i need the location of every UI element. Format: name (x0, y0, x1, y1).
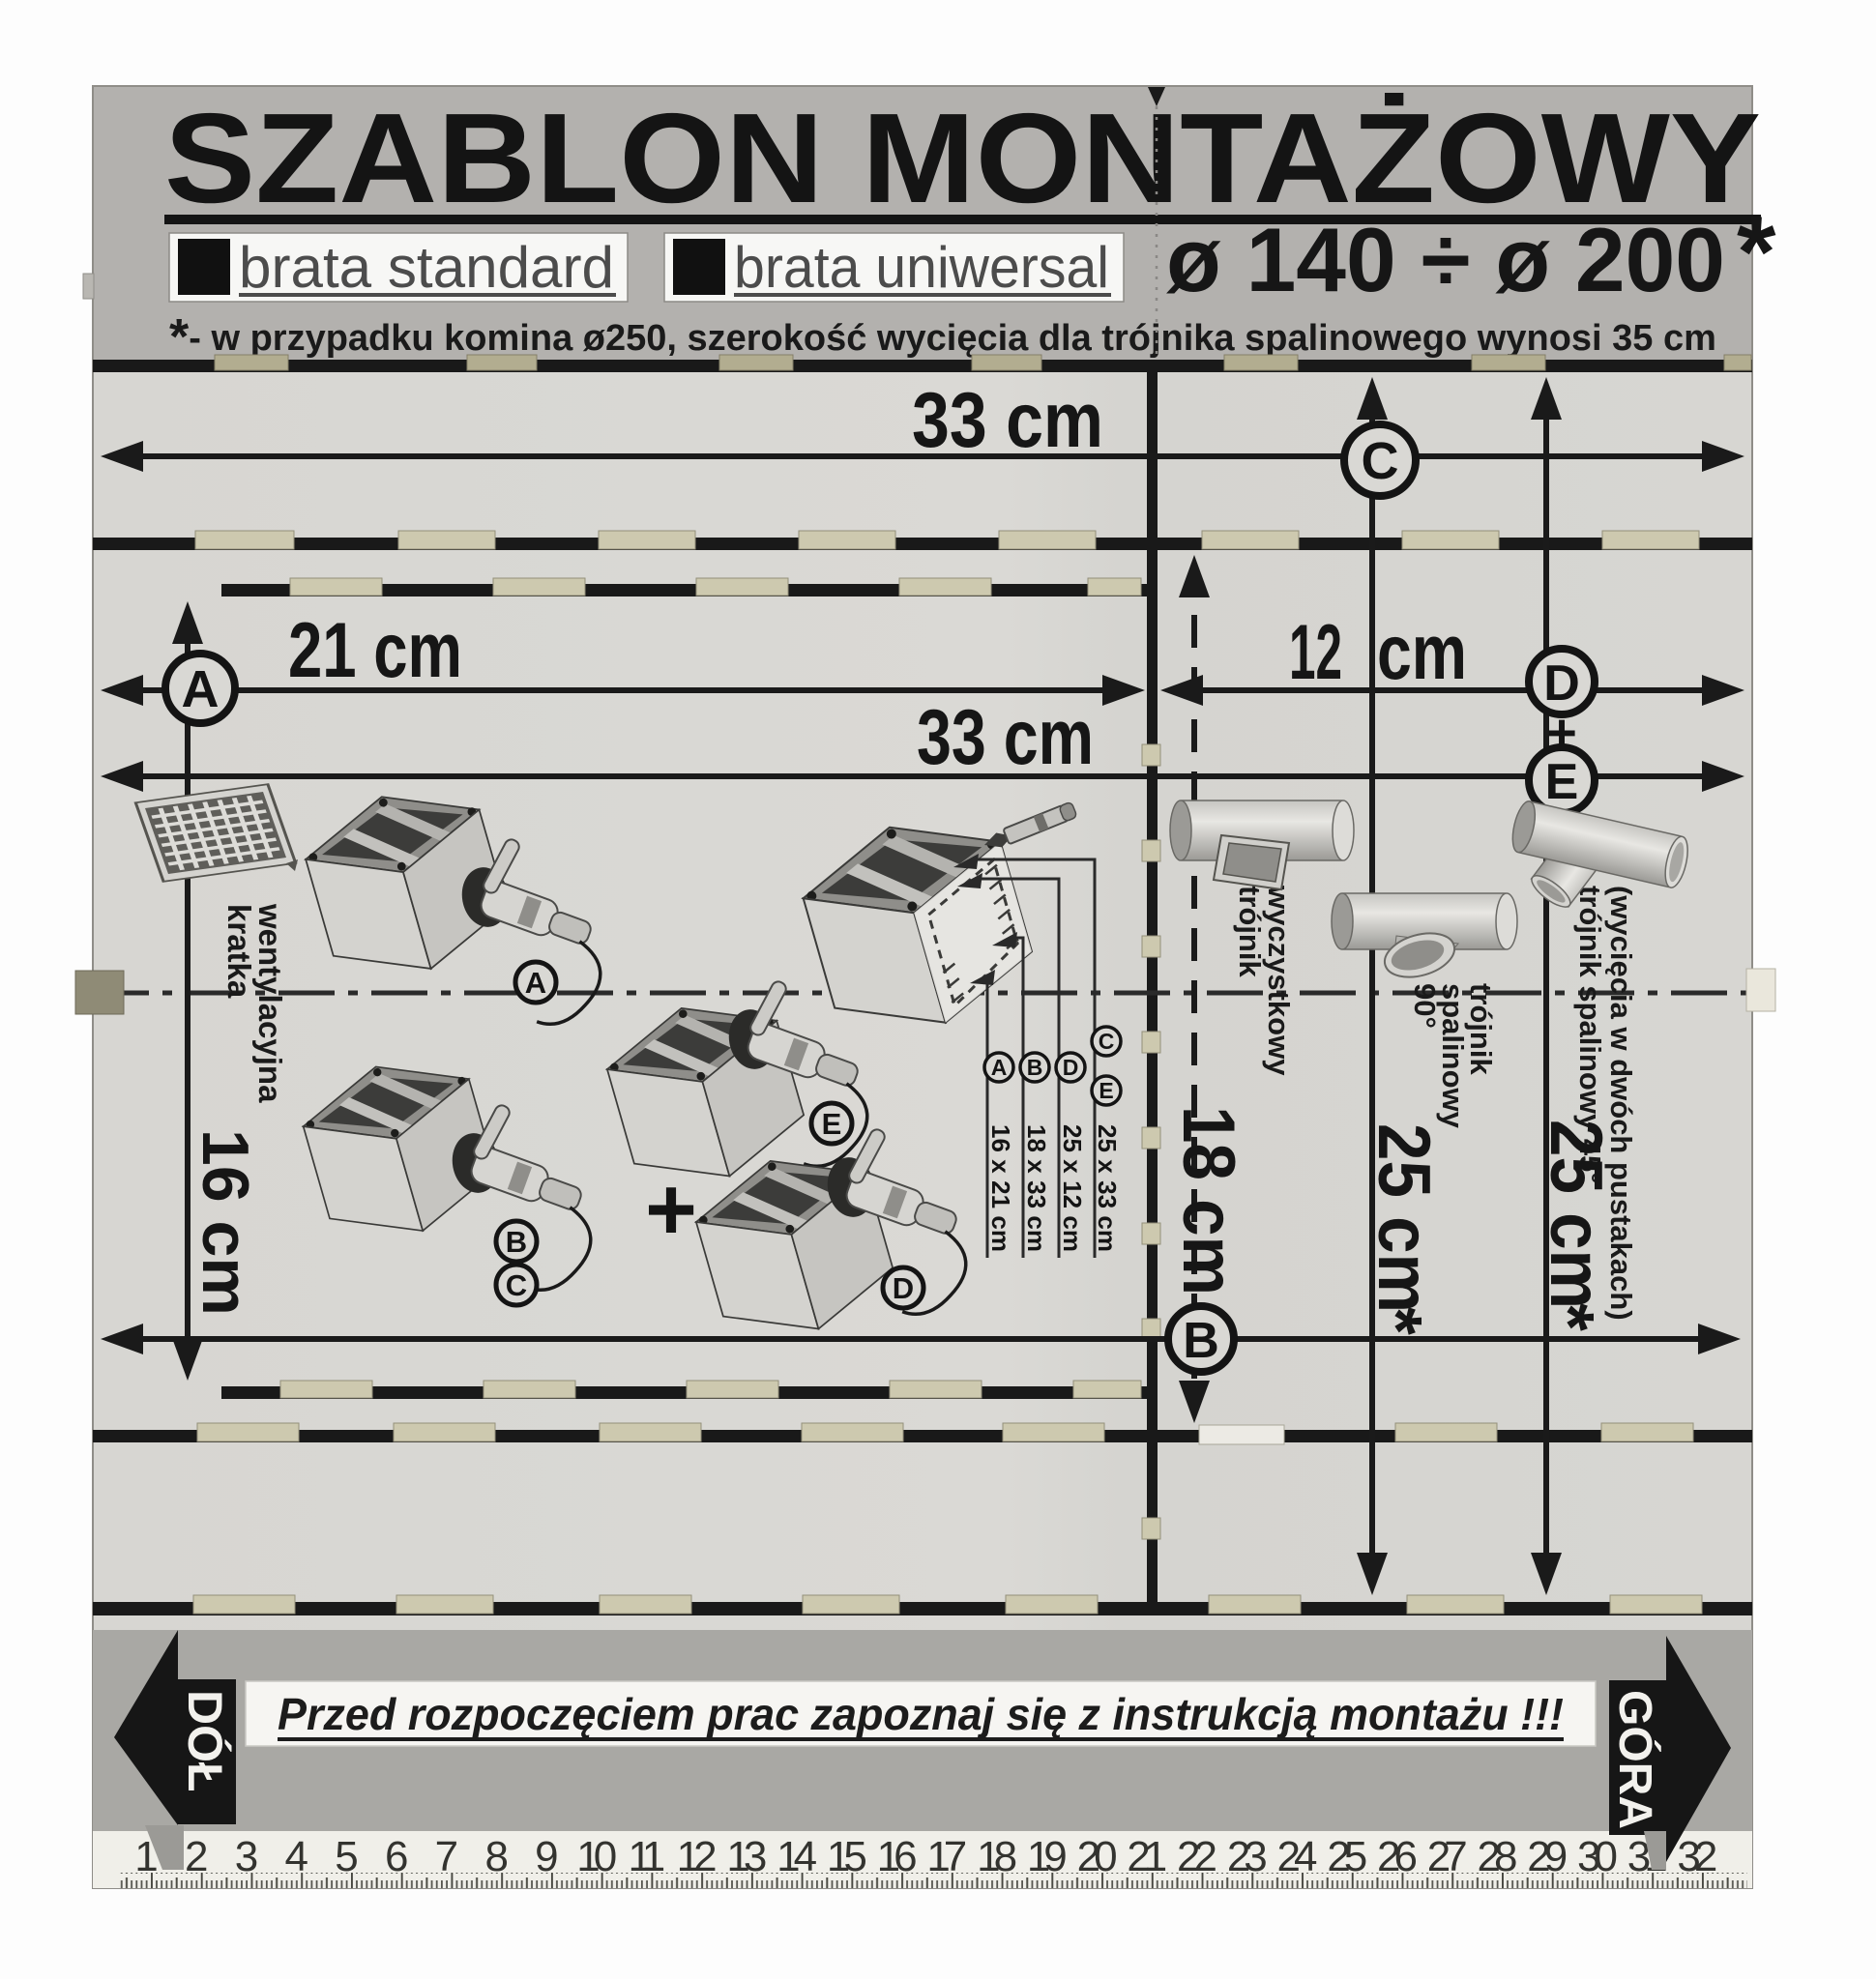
svg-text:E: E (1099, 1078, 1113, 1103)
svg-text:ø 140 ÷ ø 200: ø 140 ÷ ø 200 (1166, 209, 1725, 310)
svg-text:*: * (1737, 196, 1776, 308)
svg-text:wentylacyjna: wentylacyjna (252, 903, 288, 1103)
svg-text:trójnik: trójnik (1233, 886, 1267, 977)
svg-text:cm: cm (1377, 609, 1467, 696)
svg-text:B: B (506, 1225, 527, 1259)
svg-text:12: 12 (1289, 609, 1342, 696)
svg-text:+: + (645, 1160, 697, 1259)
svg-text:16 x 21 cm: 16 x 21 cm (986, 1124, 1015, 1252)
svg-text:33 cm: 33 cm (917, 694, 1094, 781)
svg-text:SZABLON MONTAŻOWY: SZABLON MONTAŻOWY (164, 87, 1761, 229)
svg-text:21 cm: 21 cm (288, 607, 462, 694)
svg-text:DÓŁ: DÓŁ (178, 1690, 232, 1792)
svg-text:C: C (1099, 1029, 1115, 1054)
svg-text:kratka: kratka (221, 904, 257, 999)
svg-text:E: E (822, 1107, 842, 1141)
svg-text:trójnik: trójnik (1464, 983, 1498, 1075)
svg-text:Przed rozpoczęciem prac zapozn: Przed rozpoczęciem prac zapoznaj się z i… (278, 1689, 1564, 1739)
svg-text:16 cm: 16 cm (189, 1129, 262, 1316)
svg-text:33 cm: 33 cm (912, 377, 1103, 464)
svg-text:wyczystkowy: wyczystkowy (1262, 885, 1296, 1076)
svg-text:B: B (1183, 1313, 1219, 1369)
svg-text:GÓRA: GÓRA (1609, 1690, 1662, 1829)
svg-text:brata standard: brata standard (239, 235, 614, 300)
svg-text:D: D (893, 1271, 914, 1305)
svg-text:A: A (182, 660, 220, 718)
svg-text:B: B (1027, 1055, 1043, 1080)
svg-text:*: * (1529, 1303, 1609, 1331)
svg-text:C: C (1362, 432, 1399, 490)
svg-text:25 x 33 cm: 25 x 33 cm (1093, 1124, 1122, 1252)
svg-text:25 cm: 25 cm (1535, 1120, 1617, 1309)
svg-text:E: E (1545, 754, 1579, 810)
svg-text:C: C (506, 1268, 527, 1302)
svg-text:25 x 12 cm: 25 x 12 cm (1058, 1124, 1087, 1252)
svg-text:18 cm: 18 cm (1167, 1106, 1249, 1295)
svg-text:25 cm: 25 cm (1363, 1123, 1445, 1313)
svg-text:A: A (525, 966, 546, 1000)
svg-text:A: A (991, 1055, 1008, 1080)
svg-text:brata uniwersal: brata uniwersal (734, 235, 1109, 300)
svg-text:D: D (1063, 1055, 1079, 1080)
svg-text:*: * (1357, 1307, 1437, 1335)
svg-text:18 x 33 cm: 18 x 33 cm (1022, 1124, 1051, 1252)
